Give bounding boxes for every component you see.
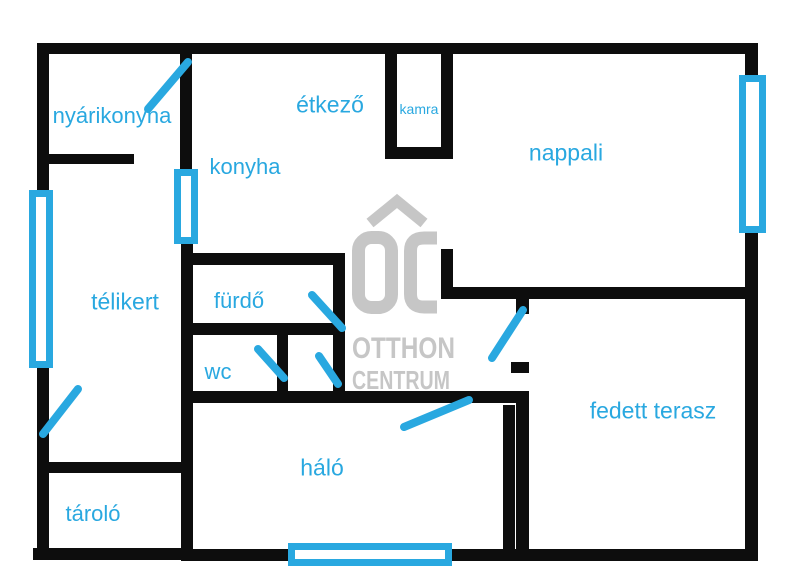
room-label-konyha: konyha <box>210 154 281 180</box>
wall-right-lower <box>745 231 758 561</box>
floor-plan: OTTHON CENTRUM nyárikonyha étkező <box>0 0 800 587</box>
wall-left-stub <box>37 163 49 192</box>
wall-furdo-top <box>183 253 345 265</box>
wall-terasz-door-jamb <box>511 362 529 373</box>
room-label-wc: wc <box>205 359 232 385</box>
room-label-halo: háló <box>300 455 343 482</box>
wall-terasz-left-lower <box>516 391 529 561</box>
wall-kamra-left <box>385 47 397 159</box>
roof-chevron-icon <box>370 201 424 223</box>
room-label-nappali: nappali <box>529 140 603 167</box>
wall-furdo-wc-divider <box>183 323 345 335</box>
wall-bottom-terasz <box>513 549 758 561</box>
wall-kamra-right <box>441 47 453 159</box>
window-halo-bottom <box>288 543 452 566</box>
wall-terasz-left-upper <box>516 287 529 314</box>
room-label-furdo: fürdő <box>214 288 264 314</box>
logo-letter-c <box>411 238 438 307</box>
wall-nappali-south <box>441 287 758 299</box>
logo-letter-o <box>359 238 392 308</box>
door-halo <box>404 400 469 427</box>
wall-tarolo-top <box>37 462 193 473</box>
wall-kamra-bottom <box>385 147 453 159</box>
wall-bottom-tarolo <box>33 548 193 560</box>
room-label-tarolo: tároló <box>65 501 120 527</box>
wall-right-upper <box>745 43 758 77</box>
room-label-telikert: télikert <box>91 289 159 316</box>
room-label-nyarikonyha: nyárikonyha <box>53 103 172 129</box>
wall-left-upper <box>37 43 49 163</box>
window-telikert-left <box>29 190 53 368</box>
room-label-fedett-terasz: fedett terasz <box>590 398 717 425</box>
wall-nyarikonyha-bottom <box>37 154 134 164</box>
door-terasz <box>492 310 523 358</box>
room-label-etkezo: étkező <box>296 92 364 119</box>
window-konyha <box>174 169 198 244</box>
wall-top <box>37 43 758 54</box>
watermark-line1: OTTHON <box>352 332 455 365</box>
wall-halo-right <box>503 405 515 555</box>
window-nappali-right <box>739 75 766 233</box>
wall-halo-top <box>181 391 529 403</box>
wall-nyarikonyha-right <box>180 43 192 169</box>
room-label-kamra: kamra <box>400 101 439 117</box>
